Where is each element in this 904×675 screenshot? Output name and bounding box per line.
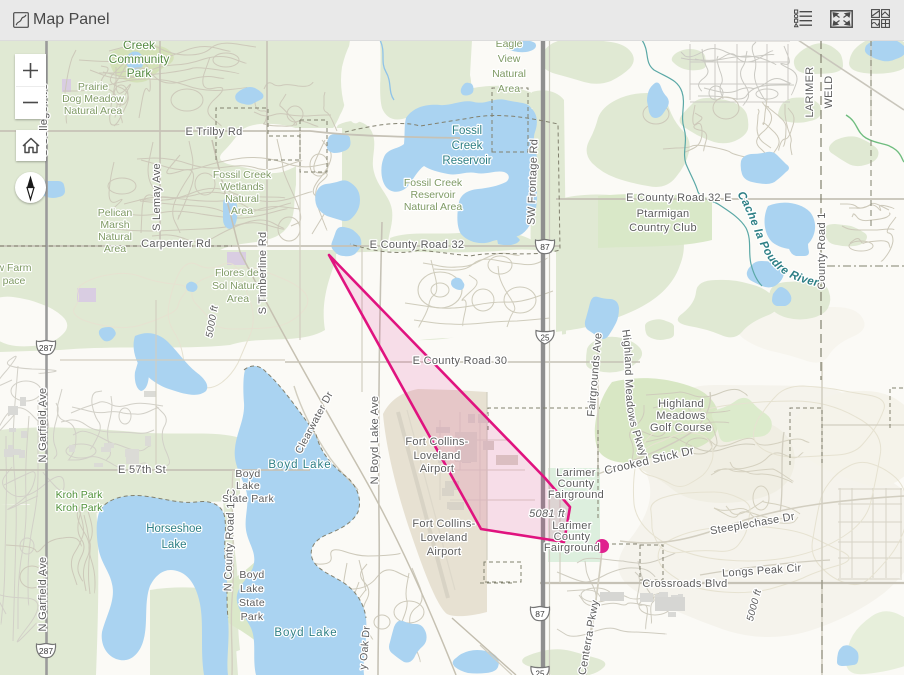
svg-text:Fossil Creek: Fossil Creek (213, 169, 272, 181)
svg-text:Fairground: Fairground (548, 489, 604, 501)
svg-text:State: State (239, 597, 265, 609)
svg-text:Wetlands: Wetlands (220, 181, 264, 193)
svg-text:Park: Park (127, 66, 153, 80)
svg-text:View: View (498, 53, 521, 65)
svg-text:Lake: Lake (240, 583, 264, 595)
svg-text:Fort Collins-: Fort Collins- (412, 518, 475, 530)
svg-text:5081 ft: 5081 ft (529, 508, 565, 520)
svg-text:State Park: State Park (222, 493, 274, 505)
svg-text:Prairie: Prairie (78, 81, 109, 93)
svg-text:Community: Community (109, 52, 170, 66)
svg-text:Area: Area (231, 205, 253, 217)
svg-text:E County Road 32: E County Road 32 (370, 239, 465, 251)
svg-text:N Garfield Ave: N Garfield Ave (37, 557, 49, 632)
svg-text:Natural: Natural (225, 193, 259, 205)
svg-text:Crossroads Blvd: Crossroads Blvd (642, 578, 727, 590)
svg-text:25: 25 (536, 670, 545, 675)
svg-text:87: 87 (535, 609, 545, 619)
svg-text:Airport: Airport (427, 546, 462, 558)
svg-text:287: 287 (39, 343, 53, 353)
svg-text:Fossil: Fossil (452, 125, 482, 137)
svg-text:pace: pace (3, 275, 26, 287)
svg-text:Loveland: Loveland (420, 532, 467, 544)
svg-text:Creek: Creek (452, 140, 483, 152)
svg-text:N Boyd Lake Ave: N Boyd Lake Ave (369, 396, 381, 485)
svg-text:S Lemay Ave: S Lemay Ave (151, 163, 163, 231)
svg-text:Fort Collins-: Fort Collins- (405, 436, 468, 448)
svg-text:Reservoir: Reservoir (442, 155, 491, 167)
svg-text:Boyd Lake: Boyd Lake (274, 627, 337, 639)
svg-text:Boyd Lake: Boyd Lake (268, 459, 331, 471)
svg-text:Kroh Park: Kroh Park (56, 489, 103, 501)
svg-text:Pelican: Pelican (98, 207, 133, 219)
svg-text:Golf Course: Golf Course (650, 422, 712, 434)
svg-text:N Garfield Ave: N Garfield Ave (37, 388, 49, 463)
svg-text:Airport: Airport (420, 463, 455, 475)
svg-text:Boyd: Boyd (239, 569, 264, 581)
svg-text:Marsh: Marsh (100, 219, 129, 231)
svg-text:87: 87 (540, 242, 550, 252)
svg-text:Flores del: Flores del (215, 267, 261, 279)
svg-text:Meadows: Meadows (656, 410, 705, 422)
svg-text:S Timberline Rd: S Timberline Rd (257, 232, 269, 315)
svg-text:Fairground: Fairground (544, 542, 600, 554)
svg-text:LARIMER: LARIMER (804, 67, 816, 118)
svg-text:Natural Area: Natural Area (404, 201, 463, 213)
svg-text:Dog Meadow: Dog Meadow (62, 93, 124, 105)
svg-text:287: 287 (39, 646, 53, 656)
svg-text:WELD: WELD (823, 76, 835, 109)
svg-text:Country Club: Country Club (629, 222, 697, 234)
svg-text:Horseshoe: Horseshoe (146, 523, 202, 535)
svg-text:Area: Area (104, 243, 126, 255)
svg-text:Fossil Creek: Fossil Creek (404, 177, 463, 189)
svg-text:25: 25 (541, 334, 550, 343)
svg-text:E 57th St: E 57th St (118, 464, 166, 476)
svg-text:Area: Area (227, 293, 249, 305)
svg-text:E County Road 30: E County Road 30 (413, 355, 508, 367)
svg-text:Natural Area: Natural Area (64, 105, 123, 117)
svg-text:E County Road 32 E: E County Road 32 E (626, 192, 732, 204)
svg-text:Loveland: Loveland (413, 450, 460, 462)
svg-text:Area: Area (498, 83, 520, 95)
svg-text:Lake: Lake (162, 539, 187, 551)
svg-text:E Trilby Rd: E Trilby Rd (185, 126, 242, 138)
svg-text:Carpenter Rd: Carpenter Rd (141, 238, 211, 250)
svg-text:Reservoir: Reservoir (411, 189, 456, 201)
svg-text:Ptarmigan: Ptarmigan (637, 208, 690, 220)
svg-text:Natural: Natural (98, 231, 132, 243)
svg-text:Highland: Highland (658, 398, 704, 410)
svg-text:w Farm: w Farm (0, 262, 32, 274)
svg-text:Boyd: Boyd (235, 468, 260, 480)
svg-text:Park: Park (241, 611, 264, 623)
svg-text:Natural: Natural (492, 68, 526, 80)
svg-text:Lake: Lake (236, 480, 260, 492)
svg-text:Kroh Park: Kroh Park (56, 502, 103, 514)
